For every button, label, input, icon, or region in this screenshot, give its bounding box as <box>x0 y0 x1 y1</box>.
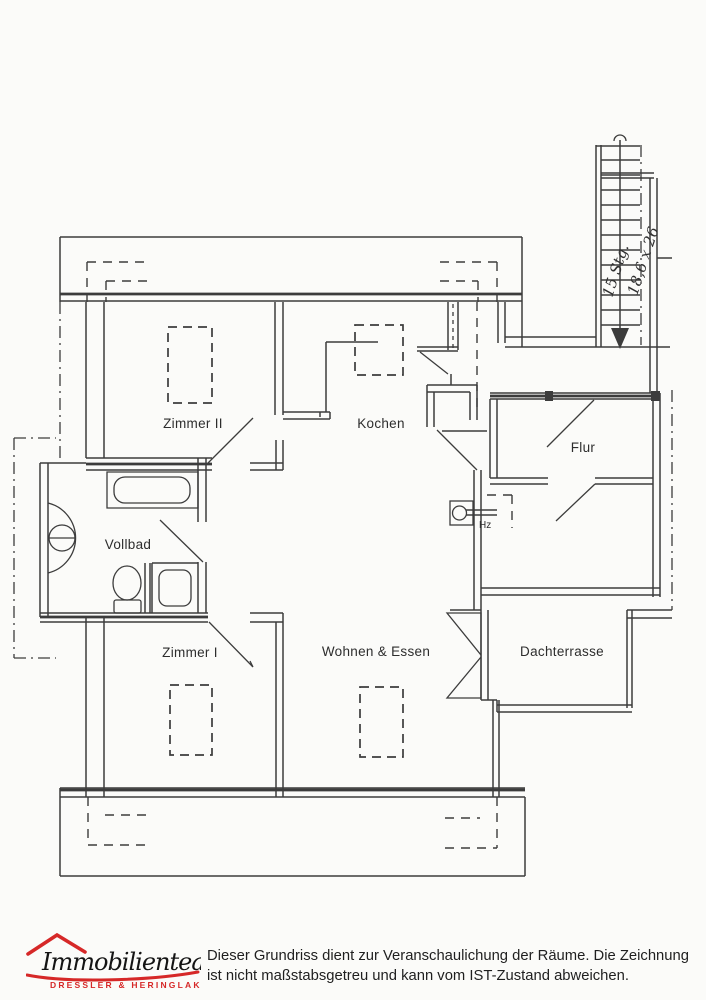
washbasin-icon <box>48 503 76 573</box>
disclaimer-text: Dieser Grundriss dient zur Veranschaulic… <box>207 946 693 987</box>
logo-name: Immobilienteam <box>41 948 201 976</box>
roof-window-zimmer1 <box>170 685 212 755</box>
heating-label: Hz <box>479 520 491 531</box>
floor-plan: 15 Stg. 18,6 x 26 <box>0 0 706 920</box>
heating-connection: Hz <box>450 501 491 531</box>
heating-box-icon <box>450 501 473 525</box>
scanned-floorplan-page: 15 Stg. 18,6 x 26 <box>0 0 706 1000</box>
agency-logo: Immobilienteam DRESSLER & HERINGLAKE <box>26 931 201 993</box>
disclaimer-line-1: Dieser Grundriss dient zur Veranschaulic… <box>207 946 693 966</box>
roof-window-kochen <box>355 325 403 375</box>
room-label-wohnen-essen: Wohnen & Essen <box>322 644 430 659</box>
heating-valve-icon <box>453 506 467 520</box>
room-label-kochen: Kochen <box>357 416 405 431</box>
toilet-icon <box>113 566 141 600</box>
terrace-door-icon <box>447 613 481 698</box>
room-label-zimmer2: Zimmer II <box>163 416 223 431</box>
logo-subtitle: DRESSLER & HERINGLAKE <box>50 980 201 990</box>
wall-lines <box>40 237 672 876</box>
shower-tray-icon <box>159 570 191 606</box>
stair-direction-arrow-icon <box>611 328 629 349</box>
wall-joint-block <box>545 391 553 401</box>
wall-joint-block <box>651 391 660 401</box>
bathtub-inner <box>114 477 190 503</box>
staircase: 15 Stg. 18,6 x 26 <box>596 135 672 393</box>
room-label-zimmer1: Zimmer I <box>162 645 218 660</box>
room-label-dachterrasse: Dachterrasse <box>520 644 604 659</box>
room-label-vollbad: Vollbad <box>105 537 151 552</box>
roof-window-zimmer2 <box>168 327 212 403</box>
toilet-tank <box>114 600 141 613</box>
roof-window-wohnen <box>360 687 403 757</box>
room-label-flur: Flur <box>571 440 596 455</box>
disclaimer-line-2: ist nicht maßstabsgetreu und kann vom IS… <box>207 966 693 986</box>
